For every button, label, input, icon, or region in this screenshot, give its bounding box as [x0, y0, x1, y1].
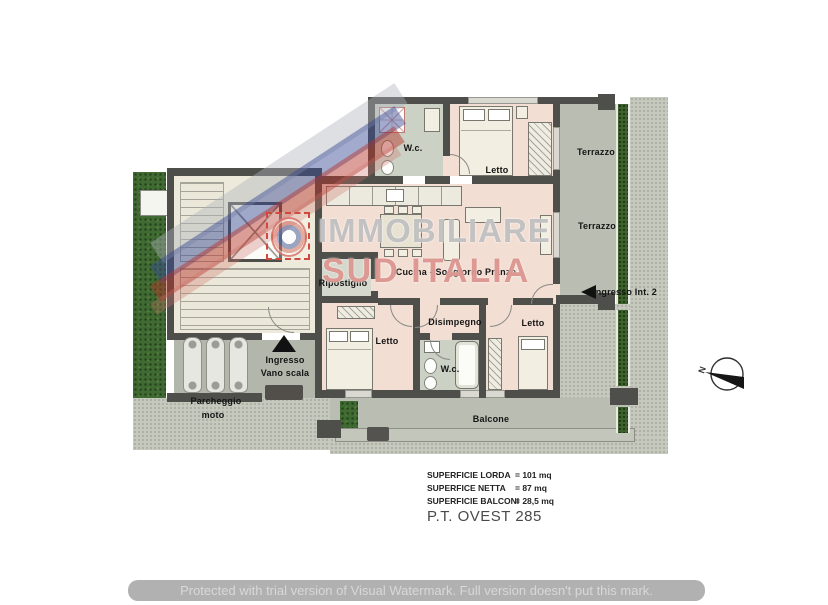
plan-title: P.T. OVEST 285	[427, 508, 542, 525]
window	[468, 97, 538, 104]
entrance-arrow-icon	[272, 335, 296, 352]
summary-value: = 28,5 mq	[515, 496, 554, 506]
wall	[452, 333, 479, 340]
pillow-icon	[488, 109, 510, 121]
pillow-icon	[463, 109, 485, 121]
watermark-footer-bar: Protected with trial version of Visual W…	[128, 580, 705, 601]
window	[345, 390, 372, 398]
summary-value: = 87 mq	[515, 483, 547, 493]
summary-line: SUPERFICIE LORDA= 101 mq	[427, 470, 552, 480]
wardrobe-icon	[488, 338, 502, 390]
window	[553, 127, 560, 170]
pillow-icon	[521, 339, 545, 350]
summary-value: = 101 mq	[515, 470, 552, 480]
room-label-disimpegno: Disimpegno	[428, 317, 482, 327]
doorstep	[140, 190, 170, 216]
room-label-letto-left: Letto	[376, 336, 399, 346]
label-parcheggio-line1: Parcheggio	[190, 396, 241, 406]
side-planter-lower	[616, 407, 630, 433]
bidet-icon	[424, 376, 437, 390]
room-label-letto-top: Letto	[486, 165, 509, 175]
wall	[553, 304, 560, 398]
nightstand-icon	[516, 106, 528, 119]
wall	[505, 390, 553, 398]
motorcycle-icon	[206, 337, 225, 393]
watermark-stamp	[266, 212, 310, 260]
label-ingresso-vano-line2: Vano scala	[261, 368, 310, 378]
summary-line: SUPERFICE NETTA= 87 mq	[427, 483, 547, 493]
summary-label: SUPERFICE NETTA	[427, 483, 515, 493]
wall	[553, 258, 560, 284]
wardrobe-icon	[528, 122, 552, 176]
terrazzo-floor	[560, 104, 616, 295]
bed-blanket-line	[461, 130, 511, 131]
label-ingresso-int2: Ingresso Int. 2	[593, 287, 657, 297]
room-label-terrazzo-lower: Terrazzo	[578, 221, 616, 231]
wall	[317, 420, 341, 438]
room-label-balcone: Balcone	[473, 414, 509, 424]
wall	[553, 97, 560, 127]
wall	[472, 176, 553, 184]
label-ingresso-vano-line1: Ingresso	[265, 355, 304, 365]
entrance-step	[265, 385, 303, 400]
toilet-icon	[424, 358, 437, 374]
wall	[315, 340, 322, 398]
summary-label: SUPERFICIE BALCONI	[427, 496, 515, 506]
window	[553, 212, 560, 258]
kitchen-sink-icon	[386, 189, 404, 202]
pillow-icon	[350, 331, 369, 342]
motorcycle-icon	[183, 337, 202, 393]
summary-line: SUPERFICIE BALCONI= 28,5 mq	[427, 496, 554, 506]
watermark-brand-line1: IMMOBILIARE	[318, 212, 551, 250]
wall	[598, 94, 615, 110]
wall	[322, 296, 378, 303]
summary-label: SUPERFICIE LORDA	[427, 470, 515, 480]
balcony-dark-block	[367, 427, 389, 441]
room-label-wc-top: W.c.	[404, 143, 423, 153]
floor-plan: W.c. Letto Terrazzo Terrazzo Cucina - So…	[0, 0, 828, 605]
room-label-letto-right: Letto	[522, 318, 545, 328]
side-planter-upper	[616, 310, 630, 386]
compass-north-label: N	[696, 365, 708, 375]
wall	[440, 298, 488, 305]
bed-blanket-line	[328, 349, 371, 350]
wall	[443, 104, 450, 156]
balcony-grass-patch	[340, 401, 358, 428]
wall	[420, 333, 430, 340]
label-parcheggio-line2: moto	[202, 410, 225, 420]
wall	[378, 298, 415, 305]
wall	[300, 333, 322, 340]
washing-machine-icon	[424, 108, 440, 132]
motorcycle-icon	[229, 337, 248, 393]
wall	[425, 176, 450, 184]
wall	[610, 388, 638, 405]
wardrobe-icon	[337, 306, 375, 319]
wall	[322, 390, 345, 398]
compass-icon: N	[693, 347, 759, 401]
room-label-terrazzo-upper: Terrazzo	[577, 147, 615, 157]
room-label-wc-bottom: W.c.	[441, 364, 460, 374]
watermark-stamp-emblem	[271, 217, 307, 257]
terrace-planter	[616, 104, 630, 304]
pillow-icon	[329, 331, 348, 342]
watermark-brand-line2: SUD ITALIA	[322, 252, 530, 291]
wall	[553, 170, 560, 212]
